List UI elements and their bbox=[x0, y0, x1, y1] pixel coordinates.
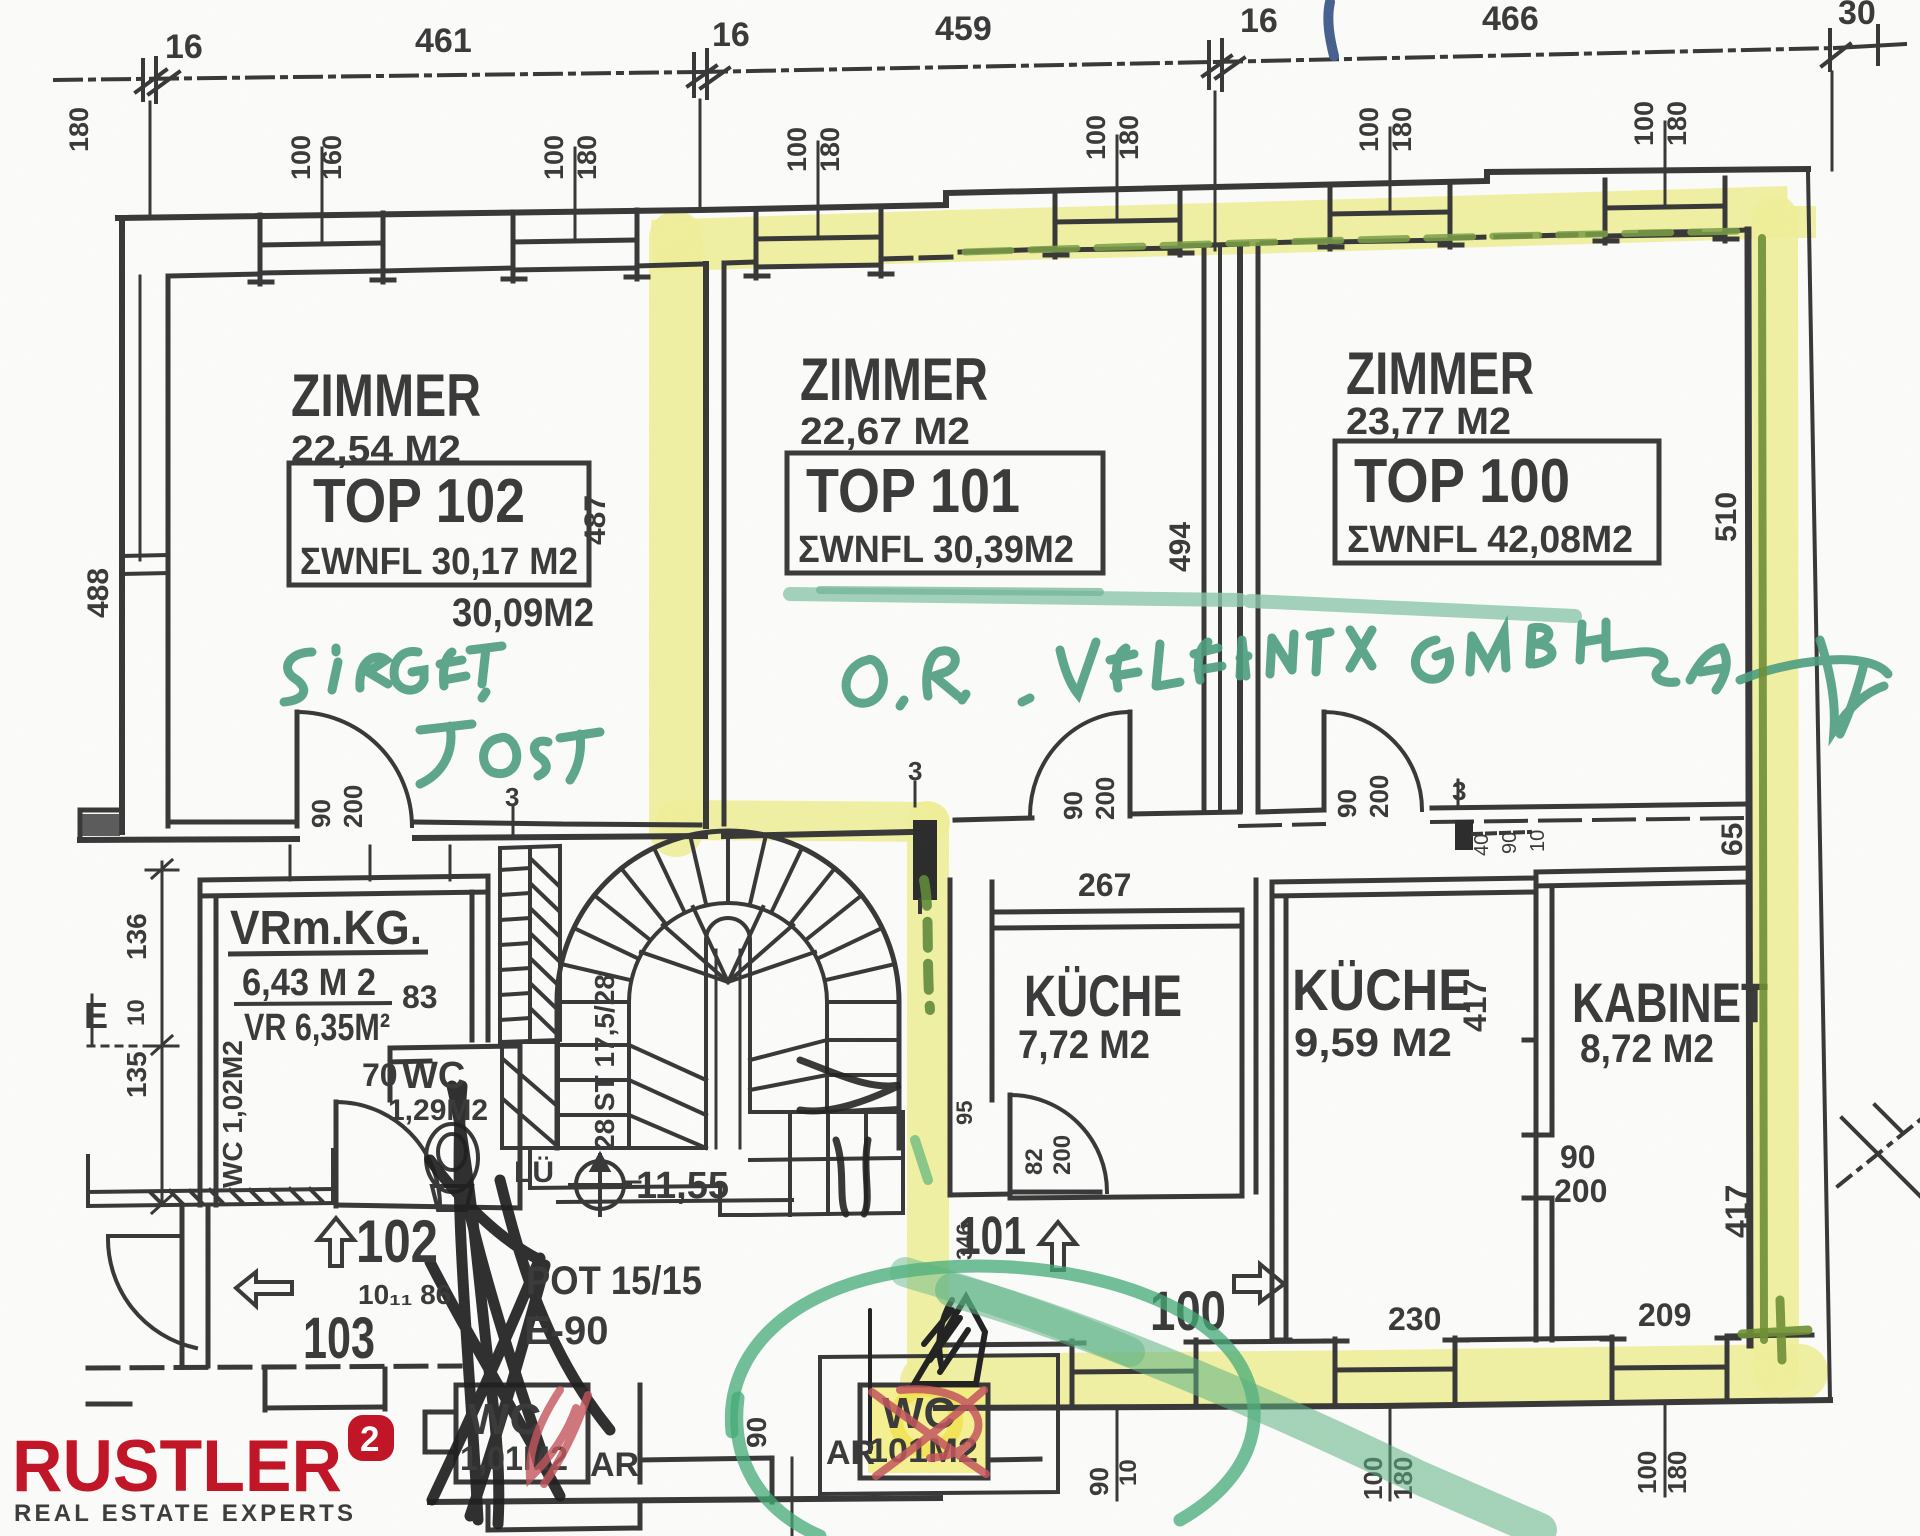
svg-text:2: 2 bbox=[360, 1420, 379, 1459]
svg-text:REAL ESTATE EXPERTS: REAL ESTATE EXPERTS bbox=[14, 1500, 356, 1527]
svg-text:RUSTLER: RUSTLER bbox=[12, 1426, 342, 1507]
